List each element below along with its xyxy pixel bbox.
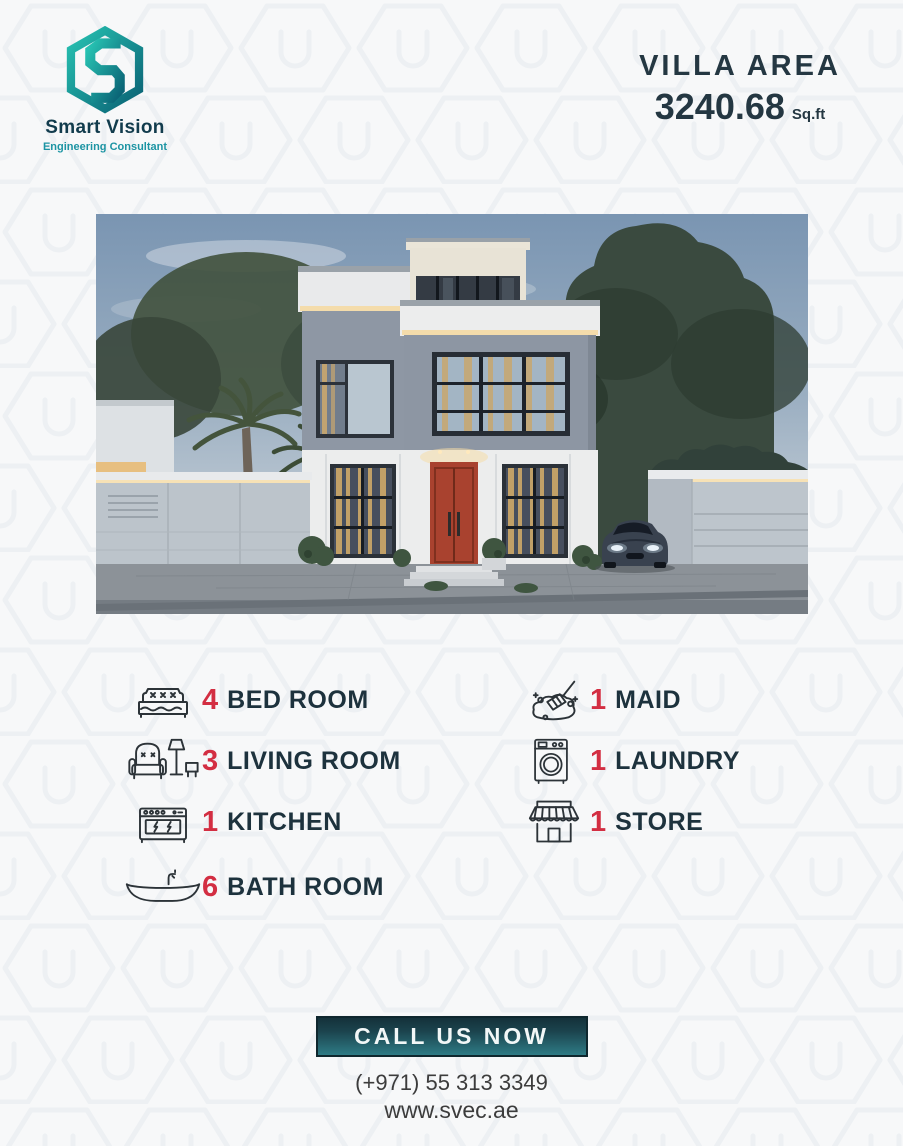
features-right-column: 1 MAID 1 LAUNDRY [524, 676, 740, 859]
feature-bed-room: 4 BED ROOM [124, 676, 401, 724]
feature-count: 4 [202, 684, 218, 717]
feature-count: 1 [590, 684, 606, 717]
villa-area-unit: Sq.ft [792, 106, 825, 123]
feature-laundry: 1 LAUNDRY [524, 737, 740, 785]
hexagon-s-icon [59, 26, 151, 118]
brand-logo: Smart Vision Engineering Consultant [30, 26, 180, 153]
feature-bath-room: 6 BATH ROOM [124, 863, 401, 911]
feature-count: 1 [590, 806, 606, 839]
feature-label: STORE [615, 808, 703, 837]
feature-living-room: 3 LIVING ROOM [124, 737, 401, 785]
feature-count: 6 [202, 871, 218, 904]
living-room-icon [124, 736, 202, 786]
features-left-column: 4 BED ROOM 3 LIVING ROOM [124, 676, 401, 924]
call-us-now-button[interactable]: CALL US NOW [316, 1016, 588, 1057]
feature-label: LAUNDRY [615, 747, 740, 776]
villa-flyer: Smart Vision Engineering Consultant VILL… [0, 0, 903, 1146]
website-url: www.svec.ae [0, 1097, 903, 1124]
feature-count: 1 [590, 745, 606, 778]
feature-label: MAID [615, 686, 681, 715]
maid-icon [524, 674, 590, 726]
villa-area-label: VILLA AREA [595, 50, 885, 83]
villa-photo [96, 214, 808, 614]
phone-number: (+971) 55 313 3349 [0, 1070, 903, 1096]
bed-icon [124, 676, 202, 724]
feature-label: LIVING ROOM [227, 747, 401, 776]
feature-count: 1 [202, 806, 218, 839]
kitchen-icon [124, 799, 202, 845]
villa-area: VILLA AREA 3240.68 Sq.ft [595, 50, 885, 128]
villa-rendering-illustration [96, 214, 808, 614]
brand-name: Smart Vision [30, 117, 180, 139]
laundry-icon [524, 735, 590, 787]
store-icon [524, 798, 590, 846]
feature-count: 3 [202, 745, 218, 778]
feature-kitchen: 1 KITCHEN [124, 798, 401, 846]
feature-maid: 1 MAID [524, 676, 740, 724]
bathtub-icon [124, 867, 202, 907]
feature-store: 1 STORE [524, 798, 740, 846]
feature-label: BED ROOM [227, 686, 369, 715]
feature-label: BATH ROOM [227, 873, 384, 902]
feature-label: KITCHEN [227, 808, 342, 837]
brand-tagline: Engineering Consultant [30, 141, 180, 153]
villa-area-value: 3240.68 [655, 86, 785, 128]
